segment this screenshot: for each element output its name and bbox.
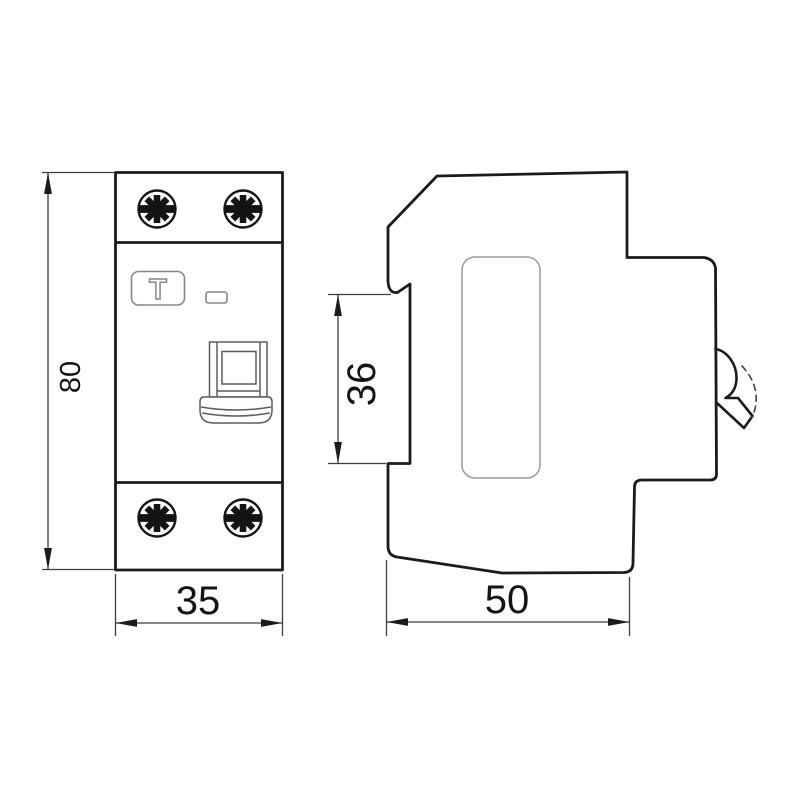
arrow-right-icon — [261, 619, 283, 627]
toggle-knob — [200, 397, 272, 423]
arrow-down-icon — [44, 548, 52, 570]
side-body-profile — [388, 172, 717, 573]
arrow-up-icon — [334, 295, 342, 317]
arrow-right-icon — [608, 618, 630, 626]
terminal-screw-top-left-icon — [139, 191, 176, 228]
dim-front-height-value: 80 — [55, 361, 87, 393]
breaker-dimension-drawing: T — [0, 0, 800, 800]
dimension-drawing-canvas: T — [0, 0, 800, 800]
dimension-rail-recess: 36 — [328, 295, 391, 464]
side-view — [388, 172, 756, 573]
arrow-left-icon — [116, 619, 138, 627]
arrow-left-icon — [387, 618, 409, 626]
terminal-screw-bottom-right-icon — [225, 500, 262, 537]
dim-front-width-value: 35 — [176, 579, 221, 623]
test-button-label: T — [149, 274, 167, 306]
toggle-lever — [716, 349, 753, 428]
dimension-front-width: 35 — [116, 574, 283, 636]
terminal-screw-bottom-left-icon — [139, 500, 176, 537]
dim-rail-recess-value: 36 — [340, 362, 384, 407]
front-view: T — [116, 173, 283, 571]
dimension-front-height: 80 — [42, 173, 114, 570]
arrow-down-icon — [334, 442, 342, 464]
arrow-up-icon — [44, 173, 52, 195]
dim-depth-value: 50 — [485, 578, 530, 622]
terminal-screw-top-right-icon — [225, 191, 262, 228]
